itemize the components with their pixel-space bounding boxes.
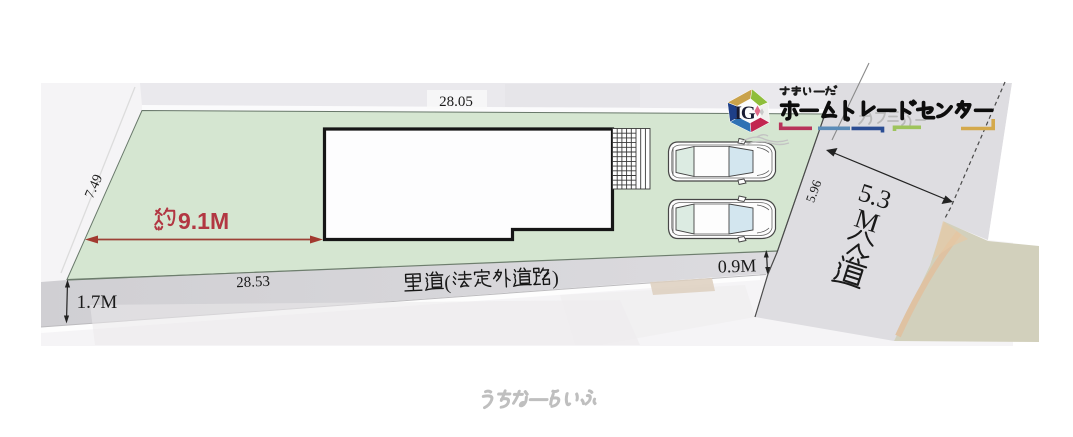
svg-text:28.53: 28.53 <box>236 274 270 291</box>
svg-text:0.9M: 0.9M <box>717 255 756 276</box>
svg-text:1.7M: 1.7M <box>77 292 118 313</box>
svg-text:(: ( <box>444 272 452 294</box>
svg-text:28.05: 28.05 <box>439 94 473 110</box>
svg-text:IG: IG <box>735 103 756 124</box>
svg-text:9.1M: 9.1M <box>178 208 229 234</box>
svg-text:): ) <box>552 267 560 289</box>
